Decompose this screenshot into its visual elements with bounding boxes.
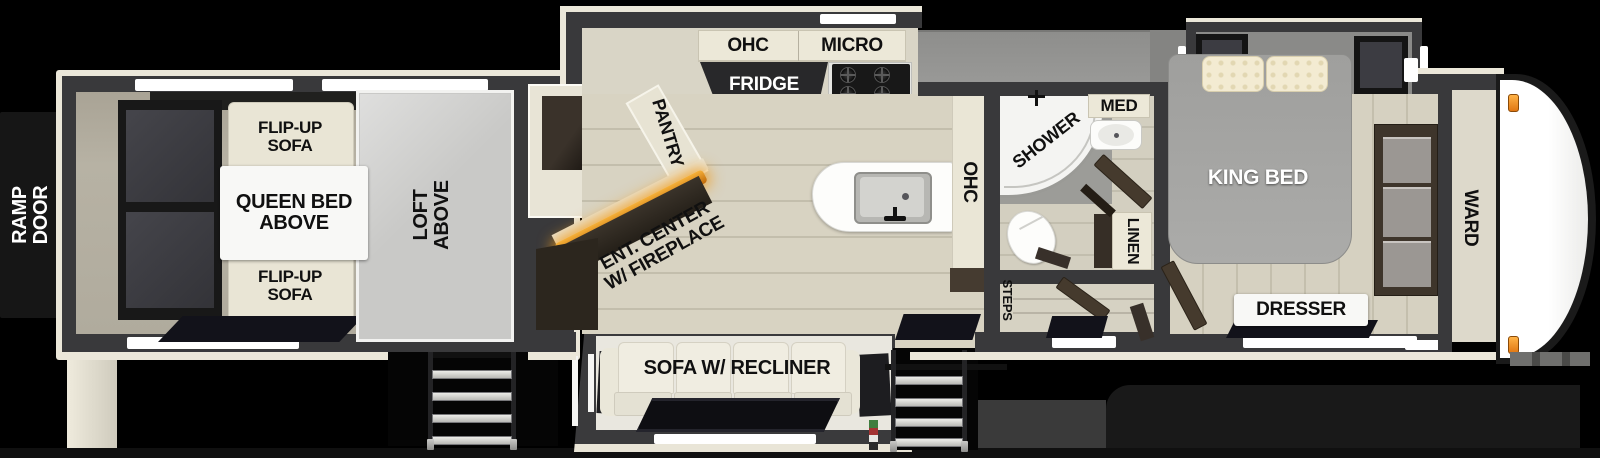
step-tread — [895, 438, 963, 447]
marker-light-icon — [1508, 94, 1519, 112]
living-room-rug — [636, 398, 840, 432]
linen-label: LINEN — [1122, 211, 1142, 271]
bottom-wall-mid — [528, 332, 576, 352]
sink-drain — [902, 193, 909, 200]
garage-entry-steps — [428, 352, 516, 450]
bathroom-bottom-wall — [1000, 270, 1154, 284]
ramp-door-label: RAMP DOOR — [6, 180, 56, 250]
stove-burner-icon — [840, 67, 856, 83]
step-top-bar — [885, 364, 1007, 370]
flip-up-sofa-top-label: FLIP-UP SOFA — [245, 112, 335, 162]
step-top-bar — [428, 352, 516, 358]
decal — [869, 420, 878, 428]
step-foot — [427, 439, 434, 450]
flip-up-sofa-bottom-label: FLIP-UP SOFA — [245, 261, 335, 311]
garage-rug — [158, 316, 364, 342]
step-rail — [962, 350, 967, 444]
bottom-skirt — [910, 352, 1560, 360]
step-foot — [510, 439, 517, 450]
garage-top-window-1 — [135, 79, 293, 91]
rv-floorplan: RAMP DOOR FLIP-UP SOFA FLIP-UP SOFA LOFT… — [0, 0, 1600, 458]
under-shadow-gray — [966, 400, 1106, 448]
top-wall-front — [918, 82, 1198, 96]
micro-label: MICRO — [802, 31, 902, 61]
kitchen-ohc-label: OHC — [700, 31, 796, 61]
garage-divider-wall — [514, 76, 528, 352]
kitchen-slide-wall-left — [566, 12, 582, 84]
shower-faucet-icon — [1035, 90, 1038, 106]
wardrobe-shelf — [1383, 187, 1431, 237]
shower-faucet-icon — [1028, 95, 1045, 98]
sofa-slide-left-sill — [572, 356, 578, 426]
rear-jack-post — [67, 352, 117, 448]
step-tread — [895, 418, 963, 427]
wardrobe-shelf — [1383, 241, 1431, 287]
front-top-window — [1404, 58, 1418, 82]
pillow — [1266, 56, 1328, 92]
step-tread — [432, 436, 512, 445]
ward-label: WARD — [1460, 188, 1480, 248]
bottom-skirt-mid — [528, 352, 576, 360]
island-ohc-base — [950, 268, 988, 292]
entry-mat — [895, 314, 981, 340]
bath-sink-drain — [1114, 133, 1119, 138]
kitchen-ohc-divider — [798, 31, 799, 61]
step-tread — [432, 370, 512, 379]
sofa-label: SOFA W/ RECLINER — [612, 356, 862, 380]
step-tread — [432, 414, 512, 423]
step-tread — [895, 376, 963, 385]
dresser-label: DRESSER — [1234, 294, 1368, 326]
sofa-slide-bottom-window — [654, 434, 816, 444]
bedroom-window-right-glass — [1360, 42, 1402, 88]
step-tread — [432, 392, 512, 401]
entry-decal-strip — [869, 420, 878, 450]
cap-under-shadow — [1510, 352, 1590, 366]
sink-faucet-icon — [893, 207, 897, 218]
decal — [869, 435, 878, 442]
stove-burner-icon — [874, 67, 890, 83]
linen-shelf-dark — [1094, 214, 1112, 268]
step-foot — [890, 441, 897, 452]
med-cabinet: MED — [1088, 94, 1150, 118]
loft-label: LOFT ABOVE — [405, 175, 459, 255]
ent-center-tv — [536, 238, 598, 330]
bedroom-wardrobe — [1374, 124, 1438, 296]
bedroom-front-wall — [1438, 76, 1452, 352]
garage-rear-window-1 — [126, 110, 214, 202]
decal — [869, 428, 878, 435]
kitchen-sink-basin — [860, 177, 924, 217]
kitchen-slide-vent — [820, 14, 896, 24]
steps-label: STEPS — [998, 279, 1016, 321]
decal — [869, 442, 878, 450]
sofa-left-window-sill — [588, 354, 594, 412]
step-rail — [891, 350, 896, 444]
step-tread — [895, 398, 963, 407]
pillow — [1202, 56, 1264, 92]
main-entry-steps — [891, 350, 967, 452]
island-ohc-label: OHC — [959, 157, 979, 207]
king-bed-label: KING BED — [1198, 152, 1318, 204]
wardrobe-shelf — [1383, 137, 1431, 183]
garage-rear-window-2 — [126, 212, 214, 308]
hallway-mat — [1046, 316, 1108, 338]
step-foot — [961, 441, 968, 452]
queen-bed-above-label: QUEEN BED ABOVE — [220, 166, 368, 260]
under-shadow-dark — [1106, 385, 1580, 455]
